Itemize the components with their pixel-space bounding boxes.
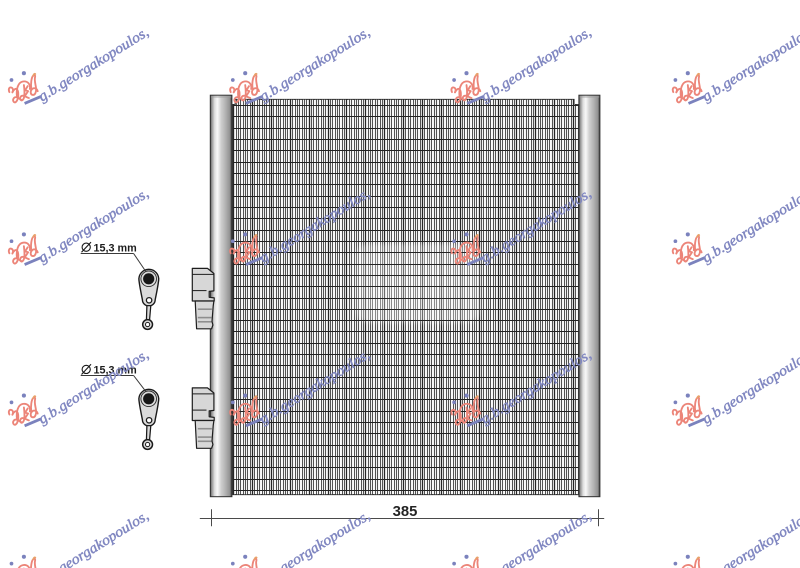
svg-text:385: 385 [393, 504, 418, 520]
svg-text:15,3 mm: 15,3 mm [94, 242, 137, 254]
